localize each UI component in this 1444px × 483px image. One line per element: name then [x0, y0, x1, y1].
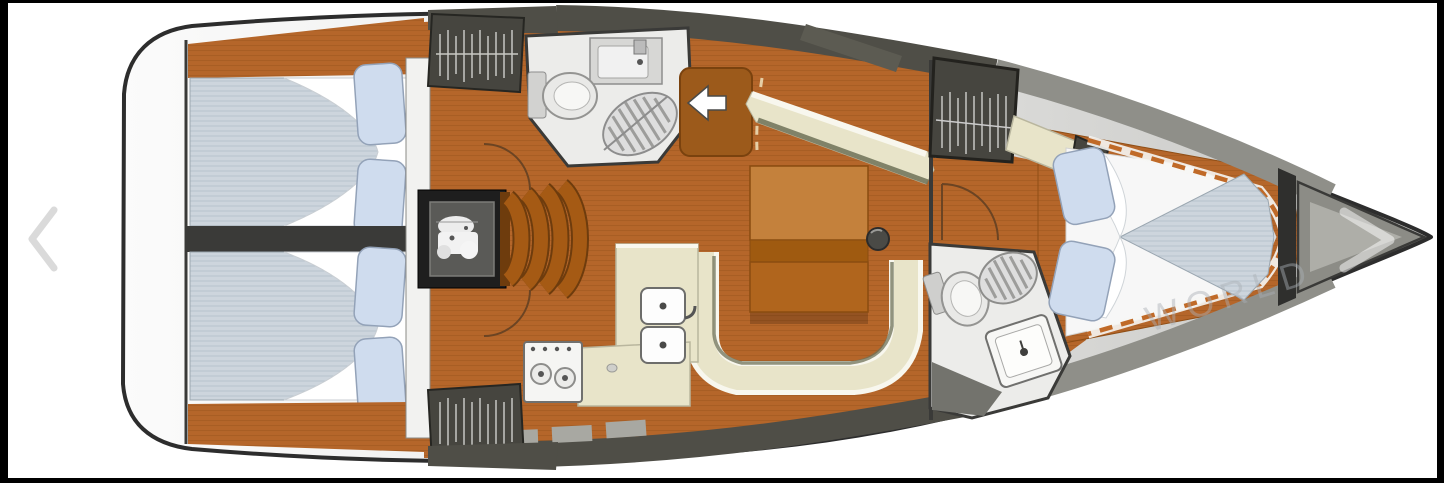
engine-icon — [436, 216, 478, 259]
floorplan-diagram: WORLD — [0, 0, 1444, 483]
counter-fitting — [607, 364, 617, 372]
table-band — [750, 240, 868, 262]
stove-knob — [567, 347, 571, 351]
burner-center — [538, 371, 544, 377]
stove-knob — [543, 347, 547, 351]
stove-knob — [531, 347, 535, 351]
companionway-housing — [680, 68, 752, 156]
table-shadow — [750, 312, 868, 324]
hull-shelf — [188, 402, 424, 452]
stove-knob — [555, 347, 559, 351]
table-leaf — [750, 262, 868, 312]
salon-table — [750, 166, 889, 324]
pillow — [353, 246, 406, 327]
sink-drain — [660, 303, 667, 310]
pillow — [353, 158, 406, 237]
hanging-locker — [428, 14, 524, 92]
mast-post — [867, 228, 889, 250]
companionway — [680, 68, 762, 156]
image-viewer: WORLD — [0, 0, 1444, 483]
toilet-seat — [554, 82, 590, 110]
sink-drain — [660, 342, 667, 349]
deck-hatch — [552, 425, 593, 443]
pillow — [353, 62, 406, 145]
faucet — [634, 40, 646, 54]
table-top — [750, 166, 868, 240]
deck-wedge — [428, 442, 558, 470]
sink-drain — [637, 59, 643, 65]
aft-cabin-port — [188, 246, 424, 452]
deck-hatch — [605, 420, 646, 439]
burner-center — [562, 375, 568, 381]
aft-cabin-starboard — [188, 18, 424, 238]
